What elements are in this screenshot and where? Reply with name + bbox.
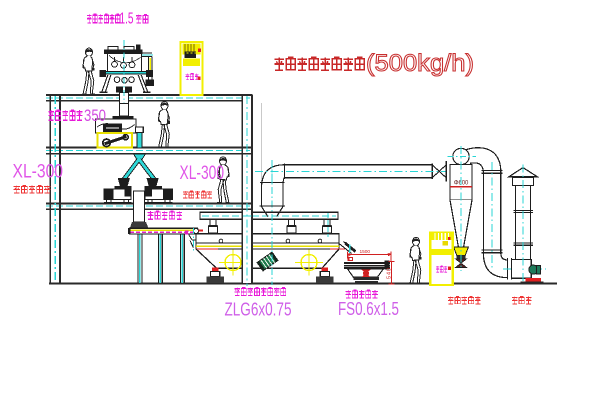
svg-text:XL-300: XL-300 [13,162,64,183]
svg-text:350: 350 [84,106,106,125]
svg-text:1500: 1500 [360,249,371,255]
svg-text:540: 540 [387,268,393,279]
svg-text:(500kg/h): (500kg/h) [366,50,474,77]
svg-text:ZLG6x0.75: ZLG6x0.75 [225,298,292,319]
svg-text:XL-300: XL-300 [180,163,225,184]
svg-text:FS0.6x1.5: FS0.6x1.5 [338,298,399,319]
svg-text:1.5: 1.5 [120,11,134,28]
